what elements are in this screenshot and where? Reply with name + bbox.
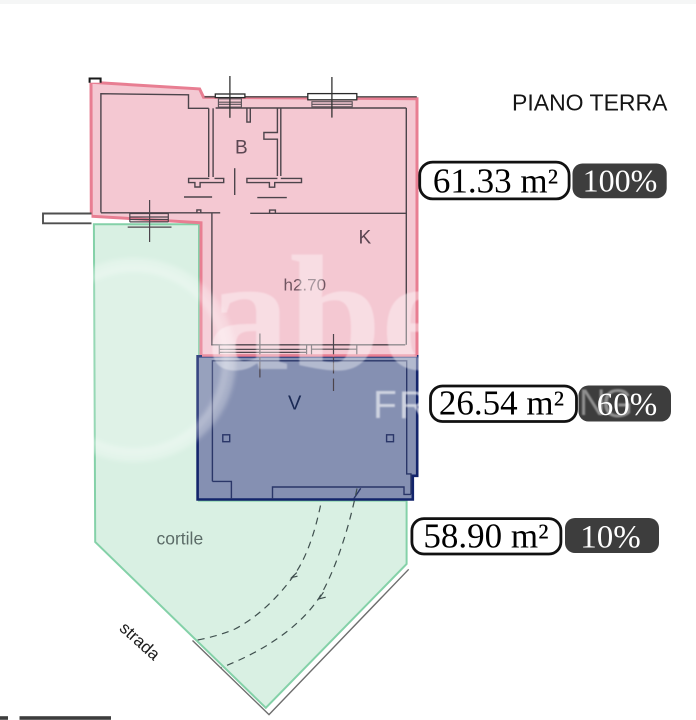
svg-text:60%: 60% (597, 387, 658, 423)
svg-text:cortile: cortile (157, 529, 204, 549)
svg-text:B: B (235, 138, 248, 159)
svg-text:10%: 10% (580, 520, 641, 556)
svg-text:FR: FR (373, 384, 429, 427)
svg-text:26.54 m²: 26.54 m² (439, 384, 564, 423)
svg-text:PIANO TERRA: PIANO TERRA (512, 90, 668, 116)
svg-text:abe: abe (207, 222, 455, 405)
svg-text:61.33 m²: 61.33 m² (433, 162, 558, 201)
svg-text:58.90 m²: 58.90 m² (423, 516, 548, 555)
svg-text:100%: 100% (583, 163, 658, 199)
